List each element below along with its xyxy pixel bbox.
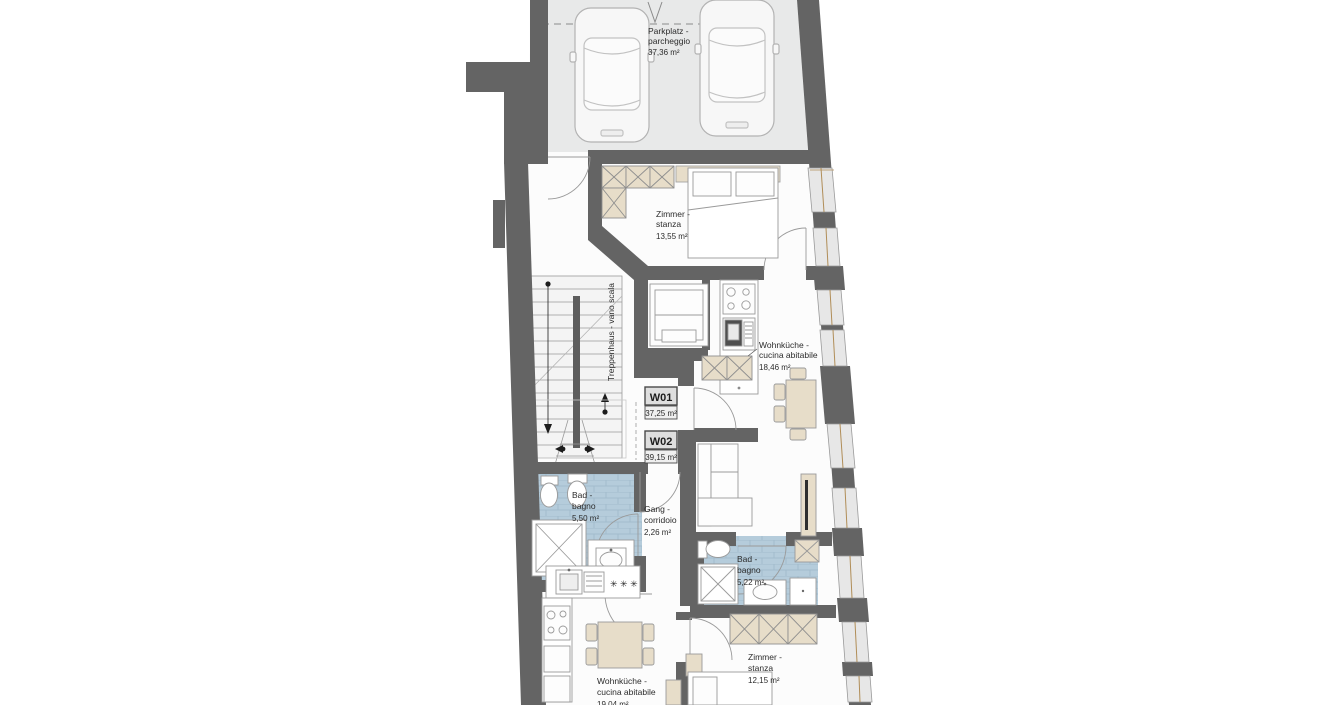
w02-kitchen: ✳ ✳ ✳ Wohnküche - cucina abitabile 19,04…	[542, 566, 656, 705]
wall	[530, 0, 548, 164]
wall	[526, 462, 648, 474]
toilet-icon	[698, 541, 730, 559]
stair-stringer	[573, 296, 580, 448]
svg-text:Zimmer -: Zimmer -	[656, 209, 690, 219]
svg-text:cucina abitabile: cucina abitabile	[597, 687, 656, 697]
window	[846, 676, 872, 702]
wall	[504, 62, 530, 164]
sink-icon	[723, 318, 755, 350]
wall	[820, 366, 855, 424]
sink-icon	[556, 569, 604, 594]
wall	[466, 62, 508, 92]
floor-plan-canvas: Parkplatz - parcheggio 37,36 m²	[0, 0, 1340, 705]
svg-text:W02: W02	[650, 436, 673, 448]
window	[808, 168, 836, 212]
svg-text:2,26 m²: 2,26 m²	[644, 528, 671, 537]
wall	[837, 598, 869, 622]
window	[837, 556, 864, 598]
wall	[634, 266, 764, 280]
wall	[588, 150, 812, 164]
svg-text:19,04 m²: 19,04 m²	[597, 700, 629, 705]
window	[827, 424, 855, 468]
svg-text:stanza: stanza	[748, 663, 773, 673]
window	[813, 228, 840, 266]
sofa	[650, 284, 708, 346]
tv-board	[801, 474, 816, 536]
wardrobe	[702, 356, 752, 380]
wall	[634, 280, 648, 354]
svg-text:Treppenhaus - vano scala: Treppenhaus - vano scala	[606, 283, 616, 381]
shower-icon	[698, 564, 738, 604]
svg-text:37,25 m²: 37,25 m²	[645, 409, 677, 418]
floor-plan-drawing: Parkplatz - parcheggio 37,36 m²	[0, 0, 1340, 705]
svg-text:Parkplatz -: Parkplatz -	[648, 26, 689, 36]
svg-text:39,15 m²: 39,15 m²	[645, 453, 677, 462]
window	[820, 330, 847, 366]
svg-text:Bad -: Bad -	[737, 554, 757, 564]
wardrobe	[795, 540, 819, 562]
staircase	[528, 276, 636, 468]
svg-text:12,15 m²: 12,15 m²	[748, 676, 780, 685]
svg-text:bagno: bagno	[737, 565, 761, 575]
svg-text:bagno: bagno	[572, 501, 596, 511]
svg-text:Wohnküche -: Wohnküche -	[597, 676, 647, 686]
wall	[842, 662, 873, 676]
unit-label-w02: W02 39,15 m²	[645, 431, 677, 463]
svg-text:corridoio: corridoio	[644, 515, 677, 525]
nightstand	[666, 680, 681, 705]
parking-area: Parkplatz - parcheggio 37,36 m²	[542, 0, 808, 152]
bath-cabinet	[790, 578, 816, 605]
wall	[680, 430, 696, 546]
wall	[493, 200, 505, 248]
svg-text:Wohnküche -: Wohnküche -	[759, 340, 809, 350]
svg-text:Zimmer -: Zimmer -	[748, 652, 782, 662]
wardrobe	[730, 614, 817, 644]
wall	[806, 266, 822, 280]
stove-icon	[544, 606, 570, 640]
svg-text:Gang -: Gang -	[644, 504, 670, 514]
wall	[678, 361, 694, 386]
wall	[588, 164, 602, 226]
svg-text:parcheggio: parcheggio	[648, 36, 690, 46]
svg-text:5,22 m²: 5,22 m²	[737, 578, 764, 587]
wall	[832, 528, 864, 556]
freezer-stars-icon: ✳ ✳ ✳	[610, 579, 638, 589]
double-bed	[688, 168, 778, 258]
window	[842, 622, 869, 662]
svg-text:W01: W01	[650, 392, 673, 404]
svg-text:cucina abitabile: cucina abitabile	[759, 350, 818, 360]
svg-text:5,50 m²: 5,50 m²	[572, 514, 599, 523]
stove-icon	[723, 284, 755, 314]
svg-text:stanza: stanza	[656, 219, 681, 229]
window	[832, 488, 859, 528]
room-label-treppenhaus: Treppenhaus - vano scala	[606, 283, 616, 381]
car-icon	[695, 0, 779, 136]
svg-text:Bad -: Bad -	[572, 490, 592, 500]
car-icon	[570, 8, 654, 142]
window	[817, 290, 844, 325]
svg-text:13,55 m²: 13,55 m²	[656, 232, 688, 241]
wall	[694, 428, 758, 442]
svg-text:18,46 m²: 18,46 m²	[759, 363, 791, 372]
unit-label-w01: W01 37,25 m²	[645, 387, 677, 419]
svg-text:37,36 m²: 37,36 m²	[648, 48, 680, 57]
bidet-icon	[541, 476, 559, 507]
